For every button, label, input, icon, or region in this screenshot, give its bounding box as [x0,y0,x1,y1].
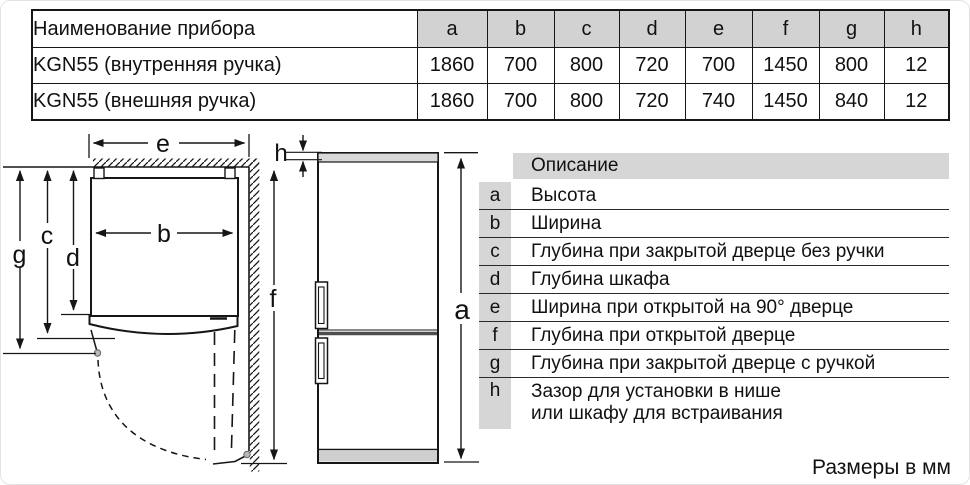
value-c: 800 [554,48,619,84]
legend-desc: Ширина [511,210,601,237]
legend-row-g: g Глубина при закрытой дверце с ручкой [479,350,949,378]
fridge-body [318,153,438,463]
value-e: 740 [685,84,752,121]
value-a: 1860 [417,84,487,121]
spec-table-name-header: Наименование прибора [32,10,417,48]
dim-label-e: e [156,130,170,158]
door-hinge-dot [244,451,250,457]
legend-row-c: c Глубина при закрытой дверце без ручки [479,238,949,266]
legend-row-d: d Глубина шкафа [479,266,949,294]
wall-spacer-left [94,168,104,179]
dim-label-c: c [41,222,54,250]
fridge-top-panel [318,153,438,162]
wall-spacer-right [225,168,235,179]
dim-header-e: e [685,10,752,48]
value-f: 1450 [752,84,819,121]
legend-table: Описание a Высота b Ширина c Глубина при… [479,153,949,429]
spec-table-row-inner-handle: KGN55 (внутренняя ручка) 1860 700 800 72… [32,48,949,84]
dim-header-d: d [619,10,685,48]
value-b: 700 [487,48,554,84]
legend-key: h [479,378,511,429]
legend-header: Описание [513,153,949,179]
value-d: 720 [619,48,685,84]
legend-row-h: h Зазор для установки в нише или шкафу д… [479,378,949,429]
legend-row-e: e Ширина при открытой на 90° дверце [479,294,949,322]
legend-desc: Глубина при открытой дверце [511,322,795,349]
legend-desc: Глубина при закрытой дверце с ручкой [511,350,875,377]
legend-key: a [479,182,511,209]
legend-desc: Зазор для установки в нише или шкафу для… [511,378,783,429]
legend-key: f [479,322,511,349]
value-g: 840 [819,84,884,121]
side-wall-hatch [250,159,259,472]
dim-header-a: a [417,10,487,48]
freezer-door-handle-bar [319,343,325,379]
legend-desc: Глубина шкафа [511,266,670,293]
legend-row-b: b Ширина [479,210,949,238]
legend-row-f: f Глубина при открытой дверце [479,322,949,350]
dim-label-f: f [270,285,277,313]
legend-key: d [479,266,511,293]
legend-key: g [479,350,511,377]
value-c: 800 [554,84,619,121]
legend-desc-line1: Зазор для установки в нише [531,381,783,403]
dim-label-h: h [274,140,287,167]
value-g: 800 [819,48,884,84]
dim-header-f: f [752,10,819,48]
plinth [319,451,437,462]
dim-label-g: g [13,241,27,269]
spec-table-header-row: Наименование прибора a b c d e f g h [32,10,949,48]
door-open-front-edge [213,457,245,465]
value-d: 720 [619,84,685,121]
dimension-drawing: e b g c d f [1,126,481,485]
door-open-right-edge [231,330,234,451]
dim-header-h: h [884,10,949,48]
installation-dimensions-sheet: Наименование прибора a b c d e f g h KGN… [0,0,970,485]
appliance-front-view [316,153,439,463]
dim-header-b: b [487,10,554,48]
value-h: 12 [884,48,949,84]
legend-key: e [479,294,511,321]
dim-label-d: d [66,244,80,272]
top-wall-hatch [93,159,259,168]
units-note: Размеры в мм [812,456,951,480]
legend-key: c [479,238,511,265]
legend-row-a: a Высота [479,182,949,210]
value-a: 1860 [417,48,487,84]
dim-header-g: g [819,10,884,48]
value-f: 1450 [752,48,819,84]
value-e: 700 [685,48,752,84]
door-swing-arc [98,360,206,460]
dim-label-b: b [157,220,171,248]
fridge-door-handle-bar [319,287,325,324]
value-h: 12 [884,84,949,121]
spec-table-row-outer-handle: KGN55 (внешняя ручка) 1860 700 800 720 7… [32,84,949,121]
legend-desc: Высота [511,182,596,209]
legend-header-row: Описание [479,153,949,179]
spec-table: Наименование прибора a b c d e f g h KGN… [31,9,950,121]
dim-header-c: c [554,10,619,48]
legend-desc-line2: или шкафу для встраивания [531,403,783,425]
value-b: 700 [487,84,554,121]
dim-label-a: a [454,294,470,325]
appliance-top-view [90,168,251,464]
legend-key: b [479,210,511,237]
model-name: KGN55 (внутренняя ручка) [32,48,417,84]
legend-header-spacer [479,153,513,179]
legend-desc: Глубина при закрытой дверце без ручки [511,238,884,265]
legend-desc: Ширина при открытой на 90° дверце [511,294,853,321]
model-name: KGN55 (внешняя ручка) [32,84,417,121]
